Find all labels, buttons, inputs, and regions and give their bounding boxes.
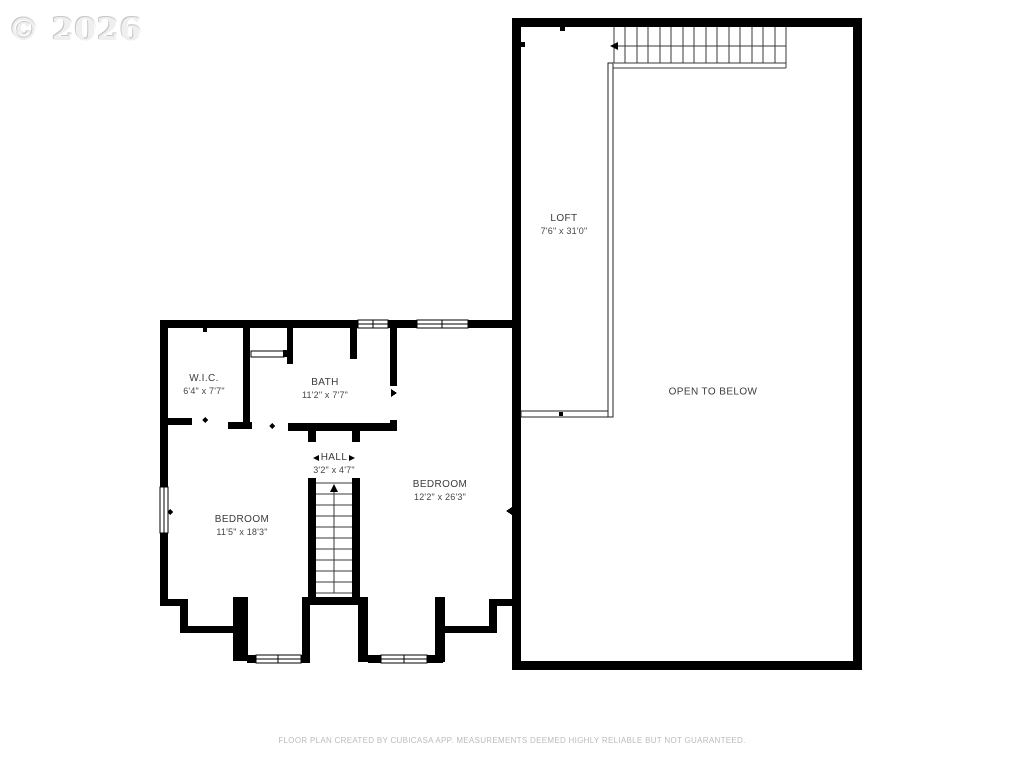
- bedroom-wall-marker: [506, 507, 512, 515]
- room-name: BEDROOM: [215, 513, 269, 526]
- floorplan-drawing: [0, 0, 1024, 768]
- room-label-bath: BATH 11'2" x 7'7": [302, 376, 348, 402]
- door-markers: [167, 27, 565, 515]
- room-name: LOFT: [541, 212, 588, 225]
- window-top-right: [417, 320, 468, 328]
- room-name: W.I.C.: [183, 372, 225, 385]
- room-dims: 6'4" x 7'7": [183, 385, 225, 398]
- room-name: BATH: [302, 376, 348, 389]
- stair-direction-arrow: [330, 484, 338, 492]
- wall-dot: [203, 328, 207, 332]
- wall-dot: [560, 27, 565, 31]
- room-dims: 7'6" x 31'0": [541, 225, 588, 238]
- room-label-loft: LOFT 7'6" x 31'0": [541, 212, 588, 238]
- room-dims: 11'5" x 18'3": [215, 526, 269, 539]
- footer-disclaimer: FLOOR PLAN CREATED BY CUBICASA APP. MEAS…: [0, 736, 1024, 745]
- room-dims: 3'2" x 4'7": [313, 464, 355, 477]
- room-label-bedroom-right: BEDROOM 12'2" x 26'3": [413, 478, 467, 504]
- loft-railing: [521, 63, 613, 417]
- room-name: BEDROOM: [413, 478, 467, 491]
- room-dims: 12'2" x 26'3": [413, 491, 467, 504]
- upper-staircase: [610, 27, 786, 68]
- interior-walls: [160, 328, 397, 600]
- bath-door-marker: [269, 423, 275, 429]
- window-bedroom-left-wall: [160, 487, 168, 533]
- room-name: OPEN TO BELOW: [669, 386, 758, 399]
- bath-door-leaf: [251, 350, 289, 357]
- wall-dot: [521, 42, 525, 47]
- window-bath-top: [358, 320, 388, 328]
- room-name: HALL: [313, 451, 355, 464]
- bath-right-door-arrow: [391, 389, 397, 397]
- window-dormer-right: [381, 655, 427, 663]
- window-dormer-left: [256, 655, 301, 663]
- right-building-walls: [512, 18, 862, 670]
- hall-staircase: [316, 483, 352, 593]
- room-label-open-to-below: OPEN TO BELOW: [669, 386, 758, 399]
- railing-dot: [559, 412, 563, 416]
- floorplan-page: © 2026: [0, 0, 1024, 768]
- room-label-wic: W.I.C. 6'4" x 7'7": [183, 372, 225, 398]
- room-dims: 11'2" x 7'7": [302, 389, 348, 402]
- wic-door-marker: [202, 417, 208, 423]
- room-label-hall: HALL 3'2" x 4'7": [313, 451, 355, 477]
- room-label-bedroom-left: BEDROOM 11'5" x 18'3": [215, 513, 269, 539]
